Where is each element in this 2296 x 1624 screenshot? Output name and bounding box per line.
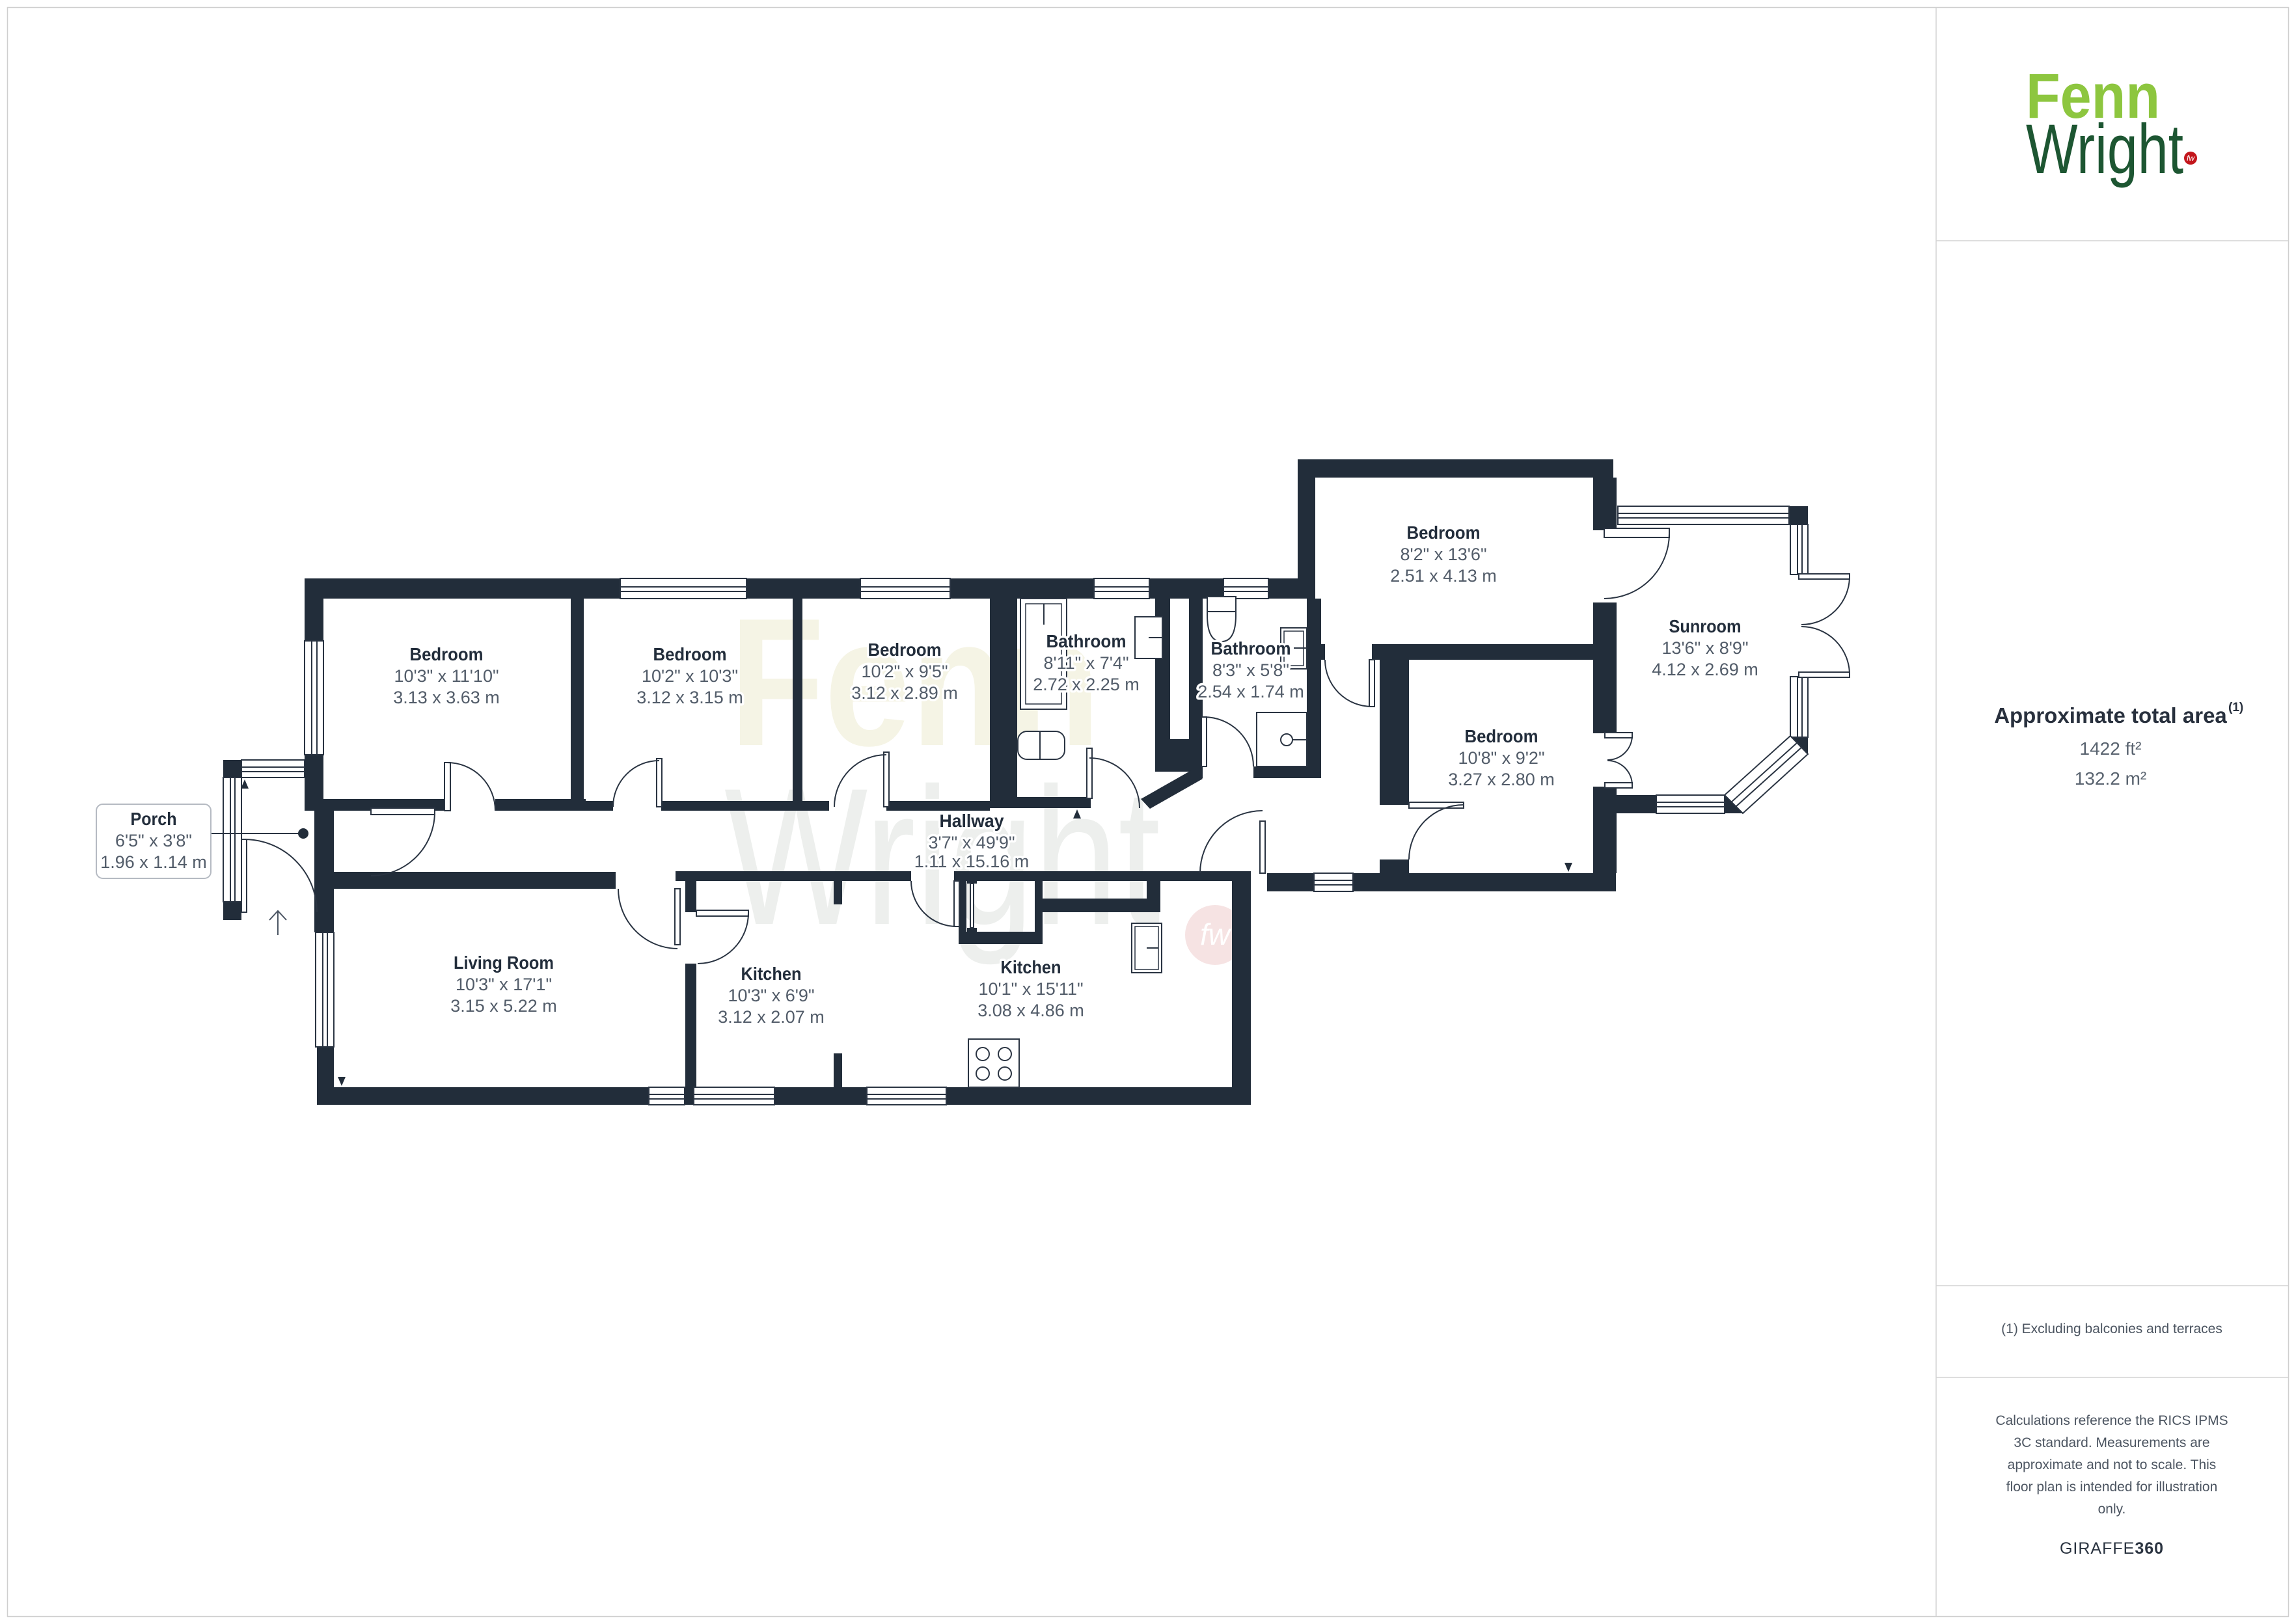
svg-text:3.12 x 2.07 m: 3.12 x 2.07 m [718,1007,825,1027]
svg-text:1.11 x 15.16 m: 1.11 x 15.16 m [914,852,1030,871]
svg-text:Kitchen: Kitchen [741,964,802,984]
svg-text:10'8" x 9'2": 10'8" x 9'2" [1458,748,1544,768]
svg-text:fw: fw [1200,917,1232,951]
svg-text:Bedroom: Bedroom [868,640,942,660]
svg-text:GIRAFFE360: GIRAFFE360 [2060,1539,2164,1558]
svg-text:floor plan is intended for ill: floor plan is intended for illustration [2006,1480,2218,1495]
svg-text:10'2" x 9'5": 10'2" x 9'5" [861,662,948,681]
svg-text:Approximate total area: Approximate total area [1994,703,2227,727]
svg-text:1.96 x 1.14 m: 1.96 x 1.14 m [100,852,207,872]
svg-text:10'1" x 15'11": 10'1" x 15'11" [978,979,1083,999]
svg-text:3'7" x 49'9": 3'7" x 49'9" [928,833,1015,852]
svg-text:Sunroom: Sunroom [1669,616,1742,636]
svg-text:Bedroom: Bedroom [410,644,484,664]
svg-text:(1): (1) [2228,701,2243,714]
svg-text:13'6" x 8'9": 13'6" x 8'9" [1661,638,1748,658]
svg-text:Bathroom: Bathroom [1046,631,1127,651]
svg-text:approximate and not to scale.: approximate and not to scale. This [2008,1457,2217,1472]
svg-text:3.27 x 2.80 m: 3.27 x 2.80 m [1448,770,1555,789]
svg-text:Bathroom: Bathroom [1211,638,1291,658]
svg-text:8'2" x 13'6": 8'2" x 13'6" [1400,545,1486,564]
svg-text:Bedroom: Bedroom [1465,726,1538,746]
svg-text:10'3" x 17'1": 10'3" x 17'1" [456,975,552,994]
svg-text:2.72 x 2.25 m: 2.72 x 2.25 m [1033,675,1140,694]
svg-text:8'3" x 5'8": 8'3" x 5'8" [1212,660,1289,680]
svg-text:only.: only. [2098,1502,2126,1517]
svg-text:3.13 x 3.63 m: 3.13 x 3.63 m [393,688,500,707]
svg-text:10'2" x 10'3": 10'2" x 10'3" [642,666,738,686]
svg-text:1422 ft²: 1422 ft² [2080,738,2142,759]
svg-text:3.12 x 3.15 m: 3.12 x 3.15 m [636,688,743,707]
svg-text:3C standard. Measurements are: 3C standard. Measurements are [2014,1435,2209,1450]
svg-text:Kitchen: Kitchen [1001,957,1061,977]
svg-text:6'5" x 3'8": 6'5" x 3'8" [115,831,192,850]
svg-text:Hallway: Hallway [940,811,1004,831]
svg-text:10'3" x 11'10": 10'3" x 11'10" [394,666,499,686]
svg-text:2.54 x 1.74 m: 2.54 x 1.74 m [1197,682,1304,701]
svg-text:(1) Excluding balconies and te: (1) Excluding balconies and terraces [2001,1321,2222,1336]
svg-text:Calculations reference the RIC: Calculations reference the RICS IPMS [1995,1413,2228,1428]
svg-text:10'3" x 6'9": 10'3" x 6'9" [728,986,814,1005]
svg-text:4.12 x 2.69 m: 4.12 x 2.69 m [1652,660,1758,679]
svg-text:Living Room: Living Room [454,953,554,973]
svg-text:2.51 x 4.13 m: 2.51 x 4.13 m [1390,566,1497,586]
svg-text:Bedroom: Bedroom [1407,522,1481,543]
svg-text:Wright: Wright [2026,109,2183,188]
svg-text:3.15 x 5.22 m: 3.15 x 5.22 m [450,996,557,1016]
svg-text:8'11" x 7'4": 8'11" x 7'4" [1043,653,1128,673]
svg-text:3.08 x 4.86 m: 3.08 x 4.86 m [977,1001,1084,1020]
svg-text:3.12 x 2.89 m: 3.12 x 2.89 m [851,683,958,703]
svg-text:Porch: Porch [131,809,177,829]
svg-text:fw: fw [2187,154,2195,163]
svg-text:132.2 m²: 132.2 m² [2075,768,2147,789]
svg-text:Bedroom: Bedroom [653,644,727,664]
